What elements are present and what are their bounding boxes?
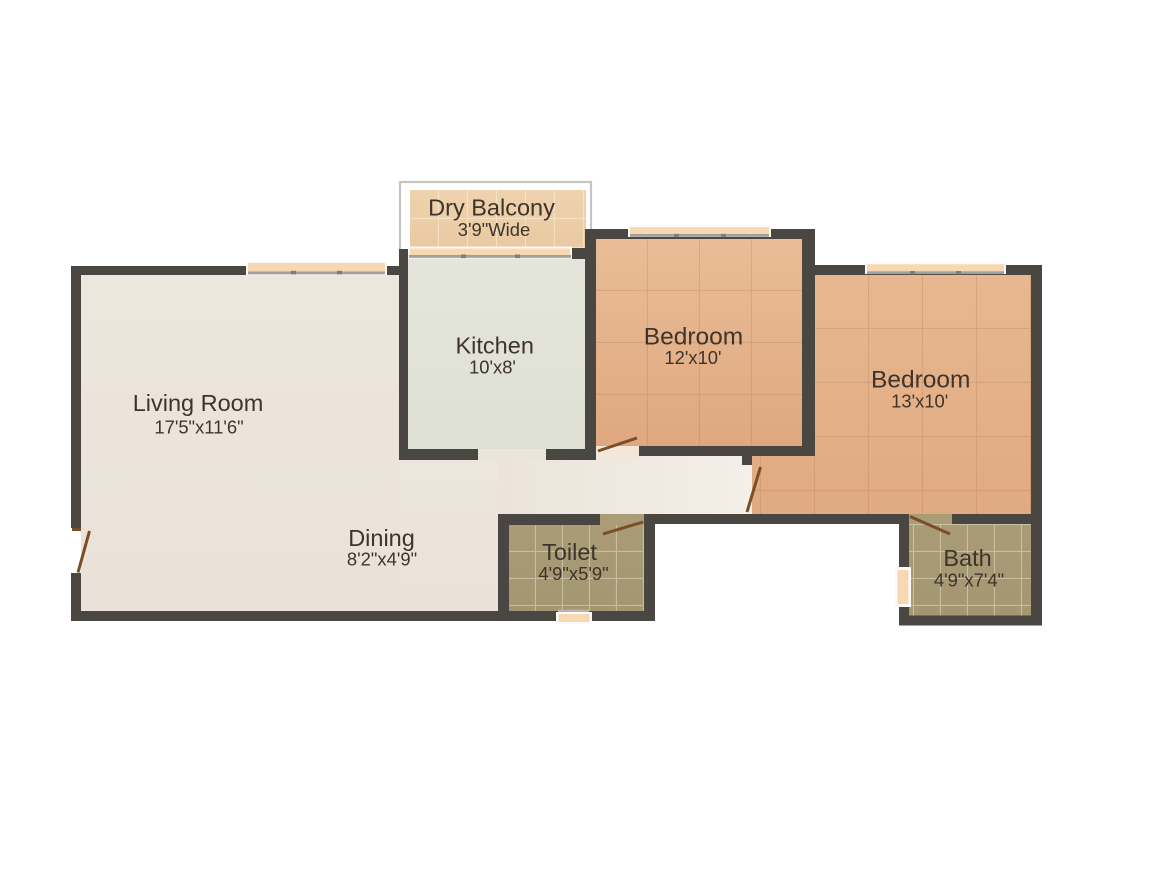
svg-text:4'9"x5'9": 4'9"x5'9"	[538, 563, 608, 584]
svg-text:Bath: Bath	[943, 545, 991, 571]
svg-text:Living Room: Living Room	[133, 390, 264, 416]
svg-text:Kitchen: Kitchen	[456, 333, 534, 359]
svg-text:4'9"x7'4": 4'9"x7'4"	[934, 570, 1004, 591]
svg-text:8'2"x4'9": 8'2"x4'9"	[347, 549, 417, 570]
svg-text:Toilet: Toilet	[542, 539, 597, 565]
svg-text:3'9"Wide: 3'9"Wide	[458, 219, 530, 240]
svg-text:Dry Balcony: Dry Balcony	[428, 195, 555, 221]
svg-text:12'x10': 12'x10'	[664, 347, 721, 368]
svg-text:10'x8': 10'x8'	[469, 357, 516, 378]
svg-text:Dining: Dining	[348, 525, 415, 551]
svg-text:13'x10': 13'x10'	[891, 390, 948, 411]
svg-text:17'5"x11'6": 17'5"x11'6"	[154, 417, 243, 438]
